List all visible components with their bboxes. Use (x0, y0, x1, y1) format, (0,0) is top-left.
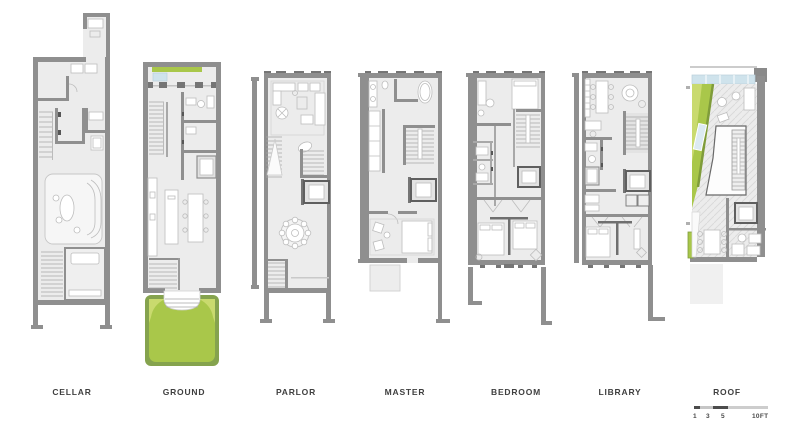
plan-label-bedroom: BEDROOM (471, 387, 561, 397)
roof-skylight-band (692, 75, 755, 84)
master-property-wall (358, 73, 365, 263)
floorplan-master (358, 71, 450, 333)
library-elevator (623, 169, 650, 206)
library-property-wall (572, 73, 579, 263)
parlor-property-wall (251, 77, 259, 289)
cellar-lounge (45, 174, 102, 244)
plan-label-master: MASTER (360, 387, 450, 397)
floorplan-cellar (31, 12, 113, 334)
floorplan-parlor (251, 71, 343, 329)
scale-bar: 1 3 5 10FT (692, 404, 772, 426)
plan-label-library: LIBRARY (575, 387, 665, 397)
bedroom-elevator (518, 167, 540, 187)
bedroom-property-wall (466, 73, 473, 265)
floorplan-bedroom (466, 71, 554, 333)
floorplan-library (572, 71, 667, 333)
plan-label-cellar: CELLAR (27, 387, 117, 397)
floor-plan-sheet: CELLAR GROUND PARLOR MASTER BEDROOM LIBR… (0, 0, 800, 437)
master-closets (369, 109, 385, 173)
plan-label-roof: ROOF (682, 387, 772, 397)
parlor-dining-table (279, 217, 311, 249)
plan-label-ground: GROUND (139, 387, 229, 397)
scale-tick-3: 3 (706, 413, 710, 420)
master-elevator (408, 177, 436, 203)
scale-tick-5: 5 (721, 413, 725, 420)
scale-bar-graphic (692, 404, 772, 412)
roof-lower-terrace (690, 264, 723, 304)
floorplan-ground (141, 60, 225, 370)
master-balcony (370, 265, 400, 291)
ground-garden (145, 291, 219, 366)
parlor-elevator (301, 179, 329, 205)
plan-label-parlor: PARLOR (251, 387, 341, 397)
scale-tick-1: 1 (693, 413, 697, 420)
floorplan-roof (686, 62, 772, 320)
scale-end-label: 10FT (752, 413, 768, 420)
library-stairs (623, 111, 648, 155)
cellar-rear-extension (83, 13, 110, 61)
